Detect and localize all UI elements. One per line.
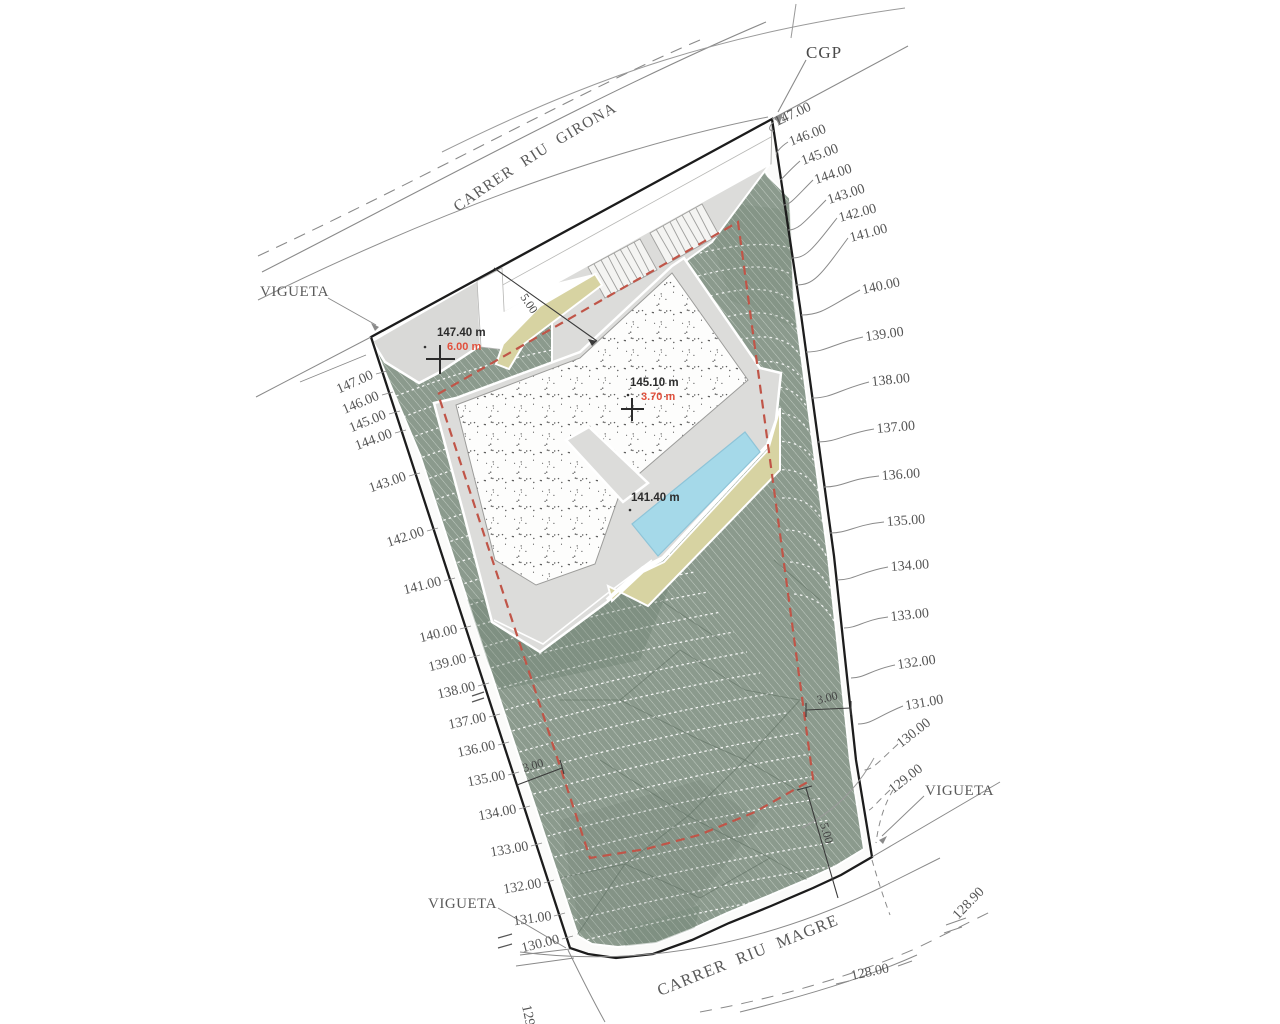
- svg-text:134.00: 134.00: [890, 557, 929, 575]
- svg-text:145.10 m: 145.10 m: [630, 377, 679, 389]
- svg-text:CGP: CGP: [806, 43, 842, 62]
- svg-text:VIGUETA: VIGUETA: [925, 783, 994, 799]
- svg-text:136.00: 136.00: [881, 466, 920, 484]
- svg-text:VIGUETA: VIGUETA: [260, 284, 329, 300]
- svg-text:6.00 m: 6.00 m: [447, 341, 481, 353]
- svg-text:3.70 m: 3.70 m: [641, 391, 675, 403]
- svg-text:VIGUETA: VIGUETA: [428, 896, 497, 912]
- svg-text:141.40 m: 141.40 m: [631, 492, 680, 504]
- svg-text:147.40 m: 147.40 m: [437, 327, 486, 339]
- svg-text:135.00: 135.00: [886, 512, 925, 530]
